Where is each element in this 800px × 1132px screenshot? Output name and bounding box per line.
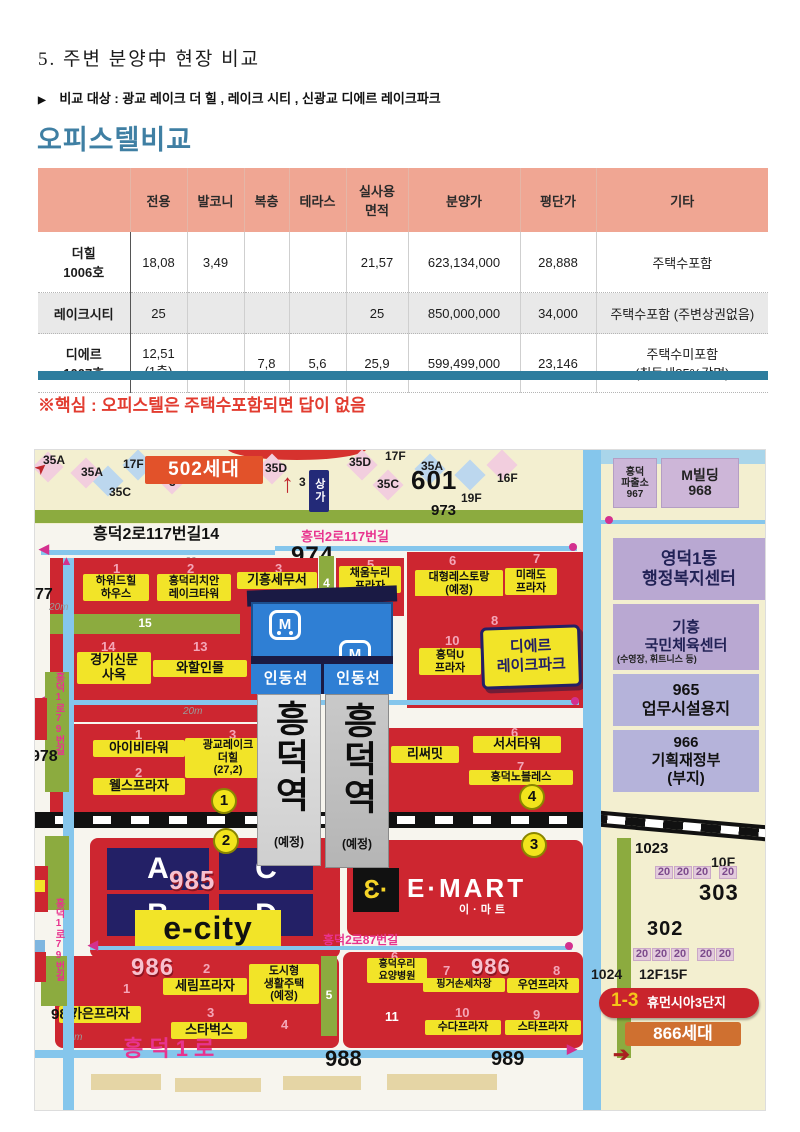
green-lot-5: 5 (321, 956, 337, 1036)
table-cell (289, 232, 346, 293)
parcel-chip: 20 (719, 866, 737, 879)
lot-number: 10 (445, 634, 459, 649)
block-966: 966 기획재정부 (부지) (613, 730, 759, 792)
road-width: 20m (183, 706, 202, 718)
table-cell: 25,9 (346, 334, 408, 393)
map-marker-4: 4 (519, 784, 545, 810)
road-dot (565, 942, 573, 950)
parcel-label: 19F (461, 492, 482, 506)
table-cell: 12,51 (1층) (130, 334, 187, 393)
table-bottom-bar (38, 371, 768, 380)
parcel-chip: 20 (693, 866, 711, 879)
lot-number: 7 (443, 964, 450, 979)
emart-korean-label: 이·마트 (459, 904, 509, 917)
parcel-chip: 20 (655, 866, 673, 879)
block-number: 1023 (635, 840, 668, 857)
page-heading: 5. 주변 분양中 현장 비교 (38, 44, 260, 71)
emart-label: E·MART (407, 874, 526, 904)
arrow-left-icon: ◀ (88, 938, 98, 953)
building-roof (387, 1074, 497, 1090)
table-row: 디에르 1007호12,51 (1층)7,85,625,9599,499,000… (38, 334, 768, 393)
building-label: 핑거손세차장 (423, 978, 505, 992)
parcel-label: 35C (377, 478, 399, 492)
building-roof (283, 1076, 361, 1090)
road-dot (571, 697, 579, 705)
bullet-text: 비교 대상 : 광교 레이크 더 힐 , 레이크 시티 , 신광교 디에르 레이… (59, 91, 440, 106)
building-label: 흥덕노블레스 (469, 770, 573, 785)
document-page: 5. 주변 분양中 현장 비교 ▶ 비교 대상 : 광교 레이크 더 힐 , 레… (0, 0, 800, 1132)
arrow-right-icon: ▶ (567, 1042, 577, 1057)
table-cell: 850,000,000 (408, 293, 520, 334)
lot-number: 8 (553, 964, 560, 979)
lot-number: 1 (123, 982, 130, 997)
parcel-label: 35A (81, 466, 103, 480)
comparison-table: 전용발코니복층테라스실사용 면적분양가평단가기타 더힐 1006호18,083,… (38, 168, 768, 393)
station-name: 흥덕역 (269, 700, 310, 828)
lot-number: 13 (193, 640, 207, 655)
road (63, 558, 74, 1110)
table-cell: 주택수포함 (주변상권없음) (596, 293, 768, 334)
table-cell: 주택수미포함 (취득세85%감면) (596, 334, 768, 393)
table-row: 더힐 1006호18,083,4921,57623,134,00028,888주… (38, 232, 768, 293)
arrow-right-icon: ➔ (613, 1044, 630, 1067)
building-label: 미래도 프라자 (505, 568, 557, 595)
label-ecity: e-city (135, 910, 281, 950)
table-cell (289, 293, 346, 334)
column-header: 평단가 (520, 168, 596, 232)
table-cell: 3,49 (187, 232, 244, 293)
arrow-up-icon: ▲ (60, 554, 73, 569)
badge-502-sedae: 502세대 (145, 456, 263, 484)
green-band (35, 510, 583, 523)
arrow-up-icon: ↑ (281, 470, 294, 496)
street-name: 흥덕2로87번길 (323, 934, 398, 948)
block-number: 978 (35, 748, 58, 766)
badge-sangga: 상가 (309, 470, 329, 512)
table-cell: 21,57 (346, 232, 408, 293)
bullet-line: ▶ 비교 대상 : 광교 레이크 더 힐 , 레이크 시티 , 신광교 디에르 … (38, 88, 441, 107)
building-label: 기흥세무서 (237, 572, 317, 589)
parcel-label: 17F (385, 450, 406, 464)
lot-number: 3 (207, 1006, 214, 1021)
lot-number: 6 (449, 554, 456, 569)
corner-header (38, 168, 130, 232)
building-label: 수다프라자 (425, 1020, 501, 1035)
building-roof (91, 1074, 161, 1090)
parcel-chip: 20 (716, 948, 734, 961)
block-police: 흥덕 파출소 967 (613, 458, 657, 508)
street-name: 흥 덕 1 로 (123, 1036, 214, 1061)
station-line-label: 인동선 (251, 664, 321, 694)
table-cell (244, 232, 289, 293)
building-label: 와할인몰 (153, 660, 247, 677)
building-label: 흥덕우리 요양병원 (367, 958, 427, 983)
building-label: 대형레스토랑 (예정) (415, 570, 503, 597)
block-number: 1024 (591, 966, 622, 982)
lot-number: 4 (281, 1018, 288, 1033)
building-label: 스타프라자 (505, 1020, 581, 1035)
table-cell: 599,499,000 (408, 334, 520, 393)
parcel-chip: 20 (671, 948, 689, 961)
parcel-label: 35C (109, 486, 131, 500)
building-label (35, 880, 45, 892)
table-cell: 623,134,000 (408, 232, 520, 293)
map-marker-1: 1 (211, 788, 237, 814)
building-label: 우연프라자 (507, 978, 579, 993)
building-roof (175, 1078, 261, 1092)
road-dot (605, 516, 613, 524)
column-header: 전용 (130, 168, 187, 232)
key-note: ※핵심 : 오피스텔은 주택수포함되면 답이 없음 (38, 391, 366, 416)
building-label: 흥덕리치안 레이크타워 (157, 574, 231, 601)
green-lot-15: 15 (50, 614, 240, 634)
building-label: 아이비타워 (93, 740, 185, 757)
table-cell (187, 334, 244, 393)
column-header: 테라스 (289, 168, 346, 232)
block-sports-center-sub: (수영장, 휘트니스 등) (617, 654, 697, 664)
street-name: 흥덕2로117번길14 (93, 526, 219, 544)
station-status: (예정) (331, 838, 383, 852)
table-cell (244, 293, 289, 334)
parcel-chip: 20 (697, 948, 715, 961)
badge-humansia-number: 1-3 (611, 990, 638, 1012)
table-cell: 25 (346, 293, 408, 334)
parcel-label: 17F (123, 458, 144, 472)
block (35, 952, 46, 982)
section-title: 오피스텔비교 (37, 118, 192, 157)
block-965: 965 업무시설용지 (613, 674, 759, 726)
badge-humansia-label: 휴먼시아3단지 (647, 996, 726, 1011)
table-cell: 34,000 (520, 293, 596, 334)
column-header: 기타 (596, 168, 768, 232)
block-number: 986 (471, 954, 511, 979)
parcel-chip: 20 (633, 948, 651, 961)
road (583, 450, 601, 1110)
row-label: 레이크시티 (38, 293, 130, 334)
building-label: 세림프라자 (163, 978, 247, 995)
table-cell: 18,08 (130, 232, 187, 293)
building-label: 서서타워 (473, 736, 561, 753)
table-cell: 25 (130, 293, 187, 334)
station-name: 흥덕역 (337, 702, 378, 830)
block-mbuilding: M빌딩 968 (661, 458, 739, 508)
column-header: 발코니 (187, 168, 244, 232)
table-cell: 7,8 (244, 334, 289, 393)
parcel-chip (35, 940, 45, 952)
block-number: 303 (699, 880, 739, 905)
lot-number: 2 (203, 962, 210, 977)
row-label: 디에르 1007호 (38, 334, 130, 393)
parcel-label: 35D (349, 456, 371, 470)
block-number: 988 (325, 1046, 362, 1071)
building-label: 도시형 생활주택 (예정) (249, 964, 319, 1004)
lot-number: 10 (455, 1006, 469, 1021)
lot-number: 7 (533, 552, 540, 567)
table-body: 더힐 1006호18,083,4921,57623,134,00028,888주… (38, 232, 768, 393)
table-cell: 주택수포함 (596, 232, 768, 293)
road (601, 520, 765, 524)
metro-icon: M (269, 610, 301, 640)
road (41, 550, 275, 555)
station-status: (예정) (263, 836, 315, 850)
block-number: 973 (431, 502, 456, 519)
column-header: 분양가 (408, 168, 520, 232)
block-number: 989 (491, 1048, 524, 1071)
road-dot (569, 543, 577, 551)
table-cell (187, 293, 244, 334)
map: 35A35A35C17F335D335D17F35A35C19F16F60197… (35, 450, 765, 1110)
building-label: 경기신문 사옥 (77, 652, 151, 684)
table-head: 전용발코니복층테라스실사용 면적분양가평단가기타 (38, 168, 768, 232)
badge-dier-lakepark: 디에르 레이크파크 (480, 624, 582, 689)
building-label: 하워드힐 하우스 (83, 574, 149, 601)
block-number: 601 (411, 466, 457, 496)
station-line-label: 인동선 (324, 664, 393, 694)
parcel-chip: 20 (674, 866, 692, 879)
table-cell: 28,888 (520, 232, 596, 293)
block (35, 698, 47, 740)
row-label: 더힐 1006호 (38, 232, 130, 293)
street-name-vertical: 흥덕1로79번길 (47, 898, 63, 998)
table-cell: 23,146 (520, 334, 596, 393)
column-header: 복층 (244, 168, 289, 232)
road (475, 1053, 575, 1058)
building-label: 웰스프라자 (93, 778, 185, 795)
map-marker-3: 3 (521, 832, 547, 858)
table-cell: 5,6 (289, 334, 346, 393)
road-width: 20m (49, 602, 68, 614)
building-label: 흥덕U 프라자 (419, 648, 481, 675)
lot-number: 11 (385, 1010, 399, 1025)
station-band (251, 656, 393, 664)
parcel-label: 3 (299, 476, 306, 490)
parcel-label: 16F (497, 472, 518, 486)
badge-866-sedae: 866세대 (625, 1022, 741, 1046)
emart-logo-icon: Ɛ· (353, 868, 399, 912)
arrow-left-icon: ◀ (39, 542, 49, 557)
bullet-icon: ▶ (38, 95, 46, 106)
building-label: 리써밋 (391, 746, 459, 763)
block-number: 302 (647, 918, 683, 941)
table-row: 레이크시티2525850,000,00034,000주택수포함 (주변상권없음) (38, 293, 768, 334)
map-marker-2: 2 (213, 828, 239, 854)
column-header: 실사용 면적 (346, 168, 408, 232)
block-community-center: 영덕1동 행정복지센터 (613, 538, 765, 600)
parcel-label: 12F15F (639, 966, 687, 982)
block-number: 985 (169, 866, 215, 896)
parcel-chip: 20 (652, 948, 670, 961)
